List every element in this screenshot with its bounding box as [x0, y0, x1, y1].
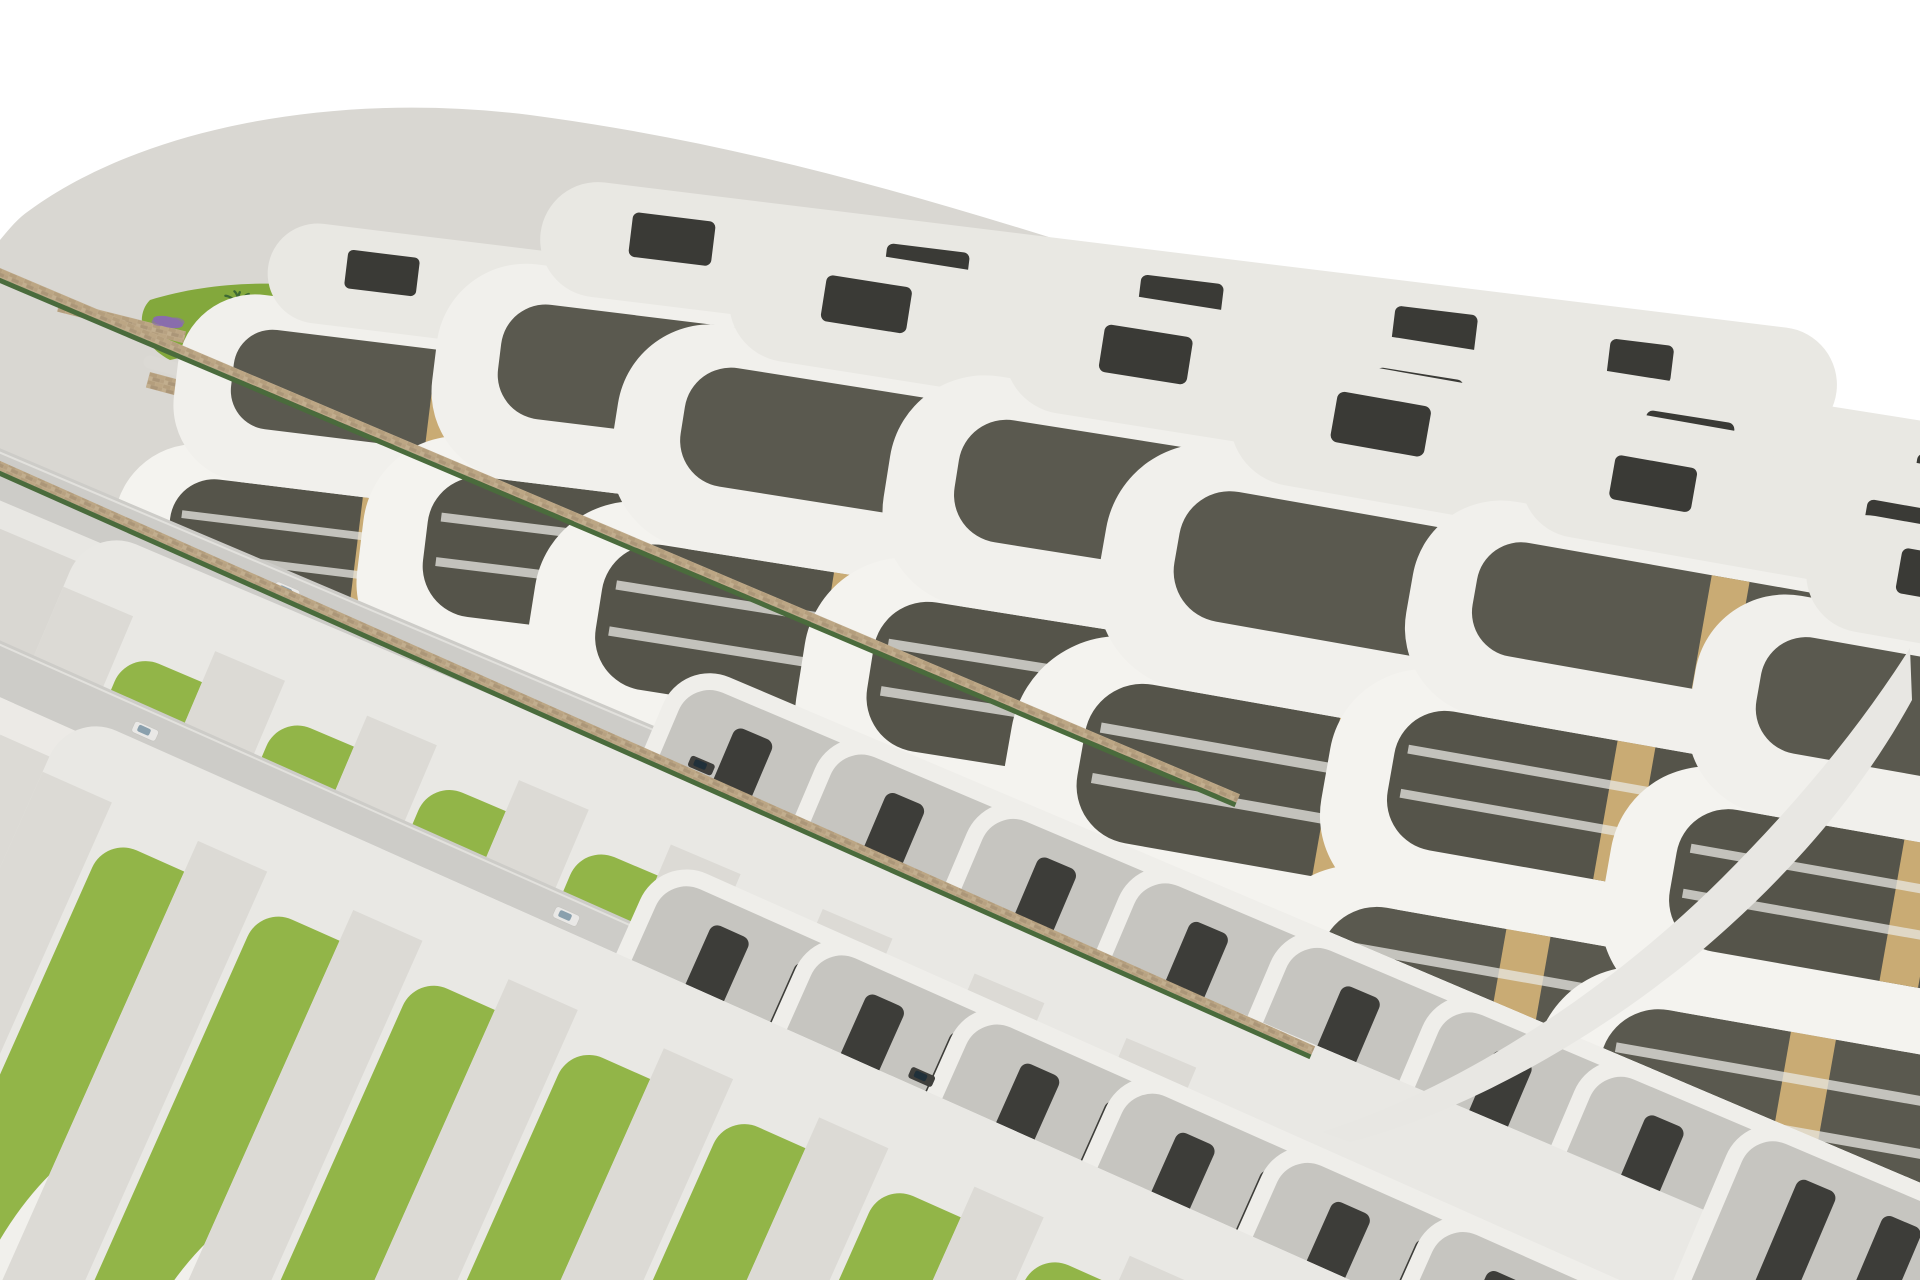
- aerial-render: [0, 0, 1920, 1280]
- render-frame: [0, 0, 1920, 1280]
